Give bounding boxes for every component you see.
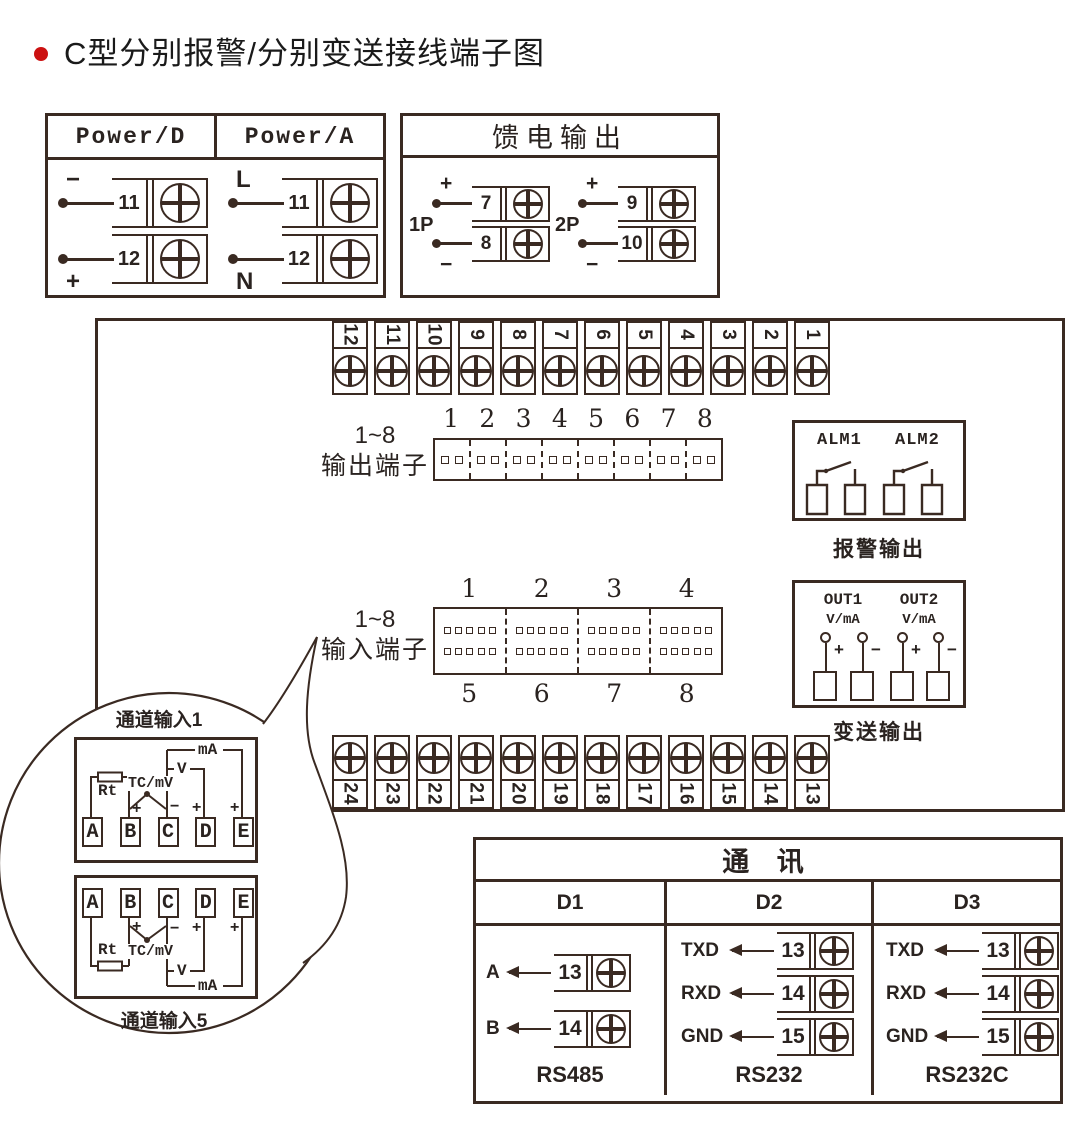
input-number: 1 [433, 574, 506, 603]
screw-icon [628, 355, 660, 387]
output-name-label: 输出端子 [310, 451, 440, 482]
pin-icon [610, 648, 617, 655]
input-connector-section [435, 609, 505, 673]
comm-column-headers: D1 D2 D3 [476, 882, 1060, 926]
out2-unit-label: V/mA [881, 612, 957, 628]
terminal-number: 11 [381, 324, 403, 346]
terminal-number: 22 [423, 782, 445, 805]
alarm-output-caption: 报警输出 [792, 533, 966, 563]
terminal-number: 6 [591, 329, 613, 341]
arrow-left-icon [509, 1028, 551, 1031]
signal-label: RXD [681, 983, 727, 1005]
pin-icon [707, 456, 715, 464]
signal-label: TXD [886, 940, 932, 962]
terminal-slot [809, 1020, 816, 1054]
feed-output-box: 馈电输出 1P + 7 − 8 2P + 9 − 10 [400, 113, 720, 298]
post-ring-icon [933, 632, 944, 643]
pin-icon [622, 627, 629, 634]
screw-icon [502, 355, 534, 387]
terminal-cell: 3 [710, 321, 746, 395]
screw-icon [502, 742, 534, 774]
pin-icon [516, 648, 523, 655]
rs232c-caption: RS232C [874, 1062, 1060, 1088]
pin-icon [671, 627, 678, 634]
screw-icon [1024, 1022, 1054, 1052]
terminal-body: 15 [777, 1018, 854, 1056]
terminal-body: 7 [472, 186, 550, 222]
plus-sign: + [132, 801, 141, 817]
terminal-number: 13 [777, 939, 809, 963]
terminal-slot [586, 1012, 593, 1046]
pin-icon [489, 648, 496, 655]
terminal-cell: 17 [626, 735, 662, 809]
signal-label: RXD [886, 983, 932, 1005]
pin-icon [599, 627, 606, 634]
post-terminal [926, 671, 950, 701]
pin-icon [588, 648, 595, 655]
power-d-terminal-11: − 11 [58, 178, 208, 228]
screw-icon [160, 183, 200, 223]
screw-box [324, 180, 378, 226]
alm2-label: ALM2 [895, 431, 940, 450]
feed-terminal-10: − 10 [578, 226, 696, 262]
pin-icon [516, 627, 523, 634]
output-terminal-label: 1~8 输出端子 [310, 421, 440, 482]
terminal-cell: 19 [542, 735, 578, 809]
bottom-terminal-strip: 24 23 22 21 20 19 18 17 [332, 735, 830, 809]
screw-icon [160, 239, 200, 279]
title-bullet-icon [34, 47, 48, 61]
input-number: 5 [433, 679, 506, 708]
power-a-header: Power/A [217, 116, 383, 157]
minus-sign: − [170, 921, 179, 937]
channel-input-5-label: 通道输入5 [84, 1006, 244, 1033]
output-number: 7 [651, 404, 687, 433]
pin-icon [660, 648, 667, 655]
pin-icon [622, 648, 629, 655]
screw-icon [819, 936, 849, 966]
ma-label: mA [197, 742, 218, 758]
terminal-number: 10 [618, 233, 646, 255]
terminal-body: 14 [777, 975, 854, 1013]
terminal-cell: 15 [710, 735, 746, 809]
terminal-number: 14 [982, 982, 1014, 1006]
screw-box [154, 180, 208, 226]
page-title: C型分别报警/分别变送接线端子图 [64, 28, 545, 73]
screw-icon [586, 742, 618, 774]
screw-icon [376, 742, 408, 774]
out1-unit-label: V/mA [805, 612, 881, 628]
plus-sign: + [66, 270, 80, 294]
wire [582, 242, 618, 245]
terminal-cell: 5 [626, 321, 662, 395]
terminal-number: 19 [549, 782, 571, 805]
group-1p-label: 1P [409, 214, 433, 237]
output-connector-section [435, 440, 469, 479]
power-terminal-box: Power/D Power/A − 11 + 12 L 11 N 12 [45, 113, 386, 298]
output-number: 5 [578, 404, 614, 433]
screw-icon [330, 183, 370, 223]
post-stem [902, 643, 905, 671]
pin-icon [660, 627, 667, 634]
input-number: 6 [506, 679, 579, 708]
terminal-number: 12 [339, 323, 361, 346]
screw-box [593, 1012, 631, 1046]
terminal-cell: 23 [374, 735, 410, 809]
terminal-cell: 24 [332, 735, 368, 809]
pin-icon [478, 627, 485, 634]
pin-icon [563, 456, 571, 464]
screw-box [1021, 1020, 1059, 1054]
terminal-body: 11 [282, 178, 378, 228]
input-number: 3 [578, 574, 651, 603]
terminal-cell: 11 [374, 321, 410, 395]
screw-icon [659, 229, 689, 259]
terminal-slot [500, 228, 507, 260]
rs485-terminal-a: A 13 [486, 954, 631, 992]
terminal-number: 2 [759, 329, 781, 341]
terminal-cell: 9 [458, 321, 494, 395]
output-number: 4 [542, 404, 578, 433]
screw-icon [330, 239, 370, 279]
plus-sign: + [440, 173, 452, 194]
terminal-slot [316, 236, 324, 282]
feed-output-header: 馈电输出 [403, 116, 717, 158]
feed-terminal-8: − 8 [432, 226, 550, 262]
terminal-slot [1014, 934, 1021, 968]
pin-icon [633, 627, 640, 634]
screw-icon [334, 355, 366, 387]
terminal-number: 9 [465, 329, 487, 341]
arrow-left-icon [732, 950, 774, 953]
terminal-body: 12 [282, 234, 378, 284]
plus-sign: + [192, 920, 201, 936]
terminal-body: 11 [112, 178, 208, 228]
terminal-number: 11 [112, 192, 146, 215]
terminal-number: 9 [618, 193, 646, 215]
transmit-output-box: OUT1 OUT2 V/mA V/mA + − + − [792, 580, 966, 708]
screw-icon [670, 355, 702, 387]
terminal-slot [809, 934, 816, 968]
terminal-slot [1014, 1020, 1021, 1054]
screw-icon [754, 355, 786, 387]
comm-header: 通 讯 [476, 840, 1060, 882]
terminal-number: 8 [472, 233, 500, 255]
wire [63, 202, 114, 205]
neutral-sign: N [236, 270, 253, 294]
output-connector-section [649, 440, 685, 479]
pin-icon [694, 627, 701, 634]
output-number: 6 [614, 404, 650, 433]
pin-icon [466, 648, 473, 655]
pin-icon [561, 627, 568, 634]
pin-icon [455, 456, 463, 464]
terminal-number: 13 [982, 939, 1014, 963]
pin-icon [444, 627, 451, 634]
pin-icon [549, 456, 557, 464]
arrow-left-icon [937, 993, 979, 996]
signal-label: A [486, 962, 504, 984]
tc-mv-label: TC/mV [127, 776, 174, 791]
output-range-label: 1~8 [310, 421, 440, 451]
post-ring-icon [897, 632, 908, 643]
terminal-cell: 10 [416, 321, 452, 395]
screw-icon [586, 355, 618, 387]
pin-icon [455, 648, 462, 655]
terminal-cell: 6 [584, 321, 620, 395]
plus-sign: + [230, 800, 239, 816]
power-d-terminal-12: + 12 [58, 234, 208, 284]
output-connector-section [505, 440, 541, 479]
pin-icon [444, 648, 451, 655]
input-terminal-label: 1~8 输入端子 [310, 605, 440, 666]
pin-icon [588, 627, 595, 634]
terminal-number: 14 [554, 1017, 586, 1041]
pin-icon [538, 627, 545, 634]
screw-icon [334, 742, 366, 774]
pin-icon [441, 456, 449, 464]
input-connector-section [577, 609, 649, 673]
screw-icon [513, 189, 543, 219]
output-number: 2 [469, 404, 505, 433]
screw-box [593, 956, 631, 990]
terminal-number: 4 [675, 329, 697, 341]
tc-mv-label: TC/mV [127, 944, 174, 959]
screw-icon [596, 958, 626, 988]
minus-sign: − [66, 168, 80, 192]
output-number: 8 [687, 404, 723, 433]
minus-sign: − [170, 799, 179, 815]
channel-terminal: B [120, 817, 141, 847]
screw-icon [659, 189, 689, 219]
channel-terminal: D [195, 817, 216, 847]
pin-icon [585, 456, 593, 464]
post-terminal [813, 671, 837, 701]
screw-icon [544, 355, 576, 387]
pin-icon [491, 456, 499, 464]
terminal-slot [586, 956, 593, 990]
arrow-left-icon [509, 972, 551, 975]
pin-icon [538, 648, 545, 655]
feed-terminal-9: + 9 [578, 186, 696, 222]
terminal-number: 12 [112, 248, 146, 271]
terminal-body: 9 [618, 186, 696, 222]
terminal-cell: 21 [458, 735, 494, 809]
terminal-body: 14 [982, 975, 1059, 1013]
relay-contact-icon [881, 457, 945, 517]
output-connector-section [685, 440, 721, 479]
post-stem [862, 643, 865, 671]
pin-icon [561, 648, 568, 655]
terminal-number: 13 [801, 782, 823, 805]
terminal-number: 7 [472, 193, 500, 215]
pin-icon [671, 456, 679, 464]
rs232-column: TXD 13 RXD 14 GND 15 RS232 [667, 926, 874, 1095]
screw-box [816, 977, 854, 1011]
channel-1-terminals: ABCDE [82, 817, 254, 847]
pin-icon [671, 648, 678, 655]
top-terminal-strip: 12 11 10 9 8 7 6 5 [332, 321, 830, 395]
alm1-label: ALM1 [817, 431, 862, 450]
pin-icon [527, 627, 534, 634]
ma-label: mA [197, 978, 218, 994]
screw-box [507, 188, 550, 220]
input-range-label: 1~8 [310, 605, 440, 635]
pin-icon [478, 648, 485, 655]
rs232c-terminal-gnd: GND 15 [886, 1018, 1059, 1056]
rs232-terminal-rxd: RXD 14 [681, 975, 854, 1013]
channel-5-wiring [77, 878, 255, 996]
terminal-cell: 14 [752, 735, 788, 809]
terminal-number: 14 [777, 982, 809, 1006]
pin-icon [657, 456, 665, 464]
post-terminal [850, 671, 874, 701]
screw-icon [460, 355, 492, 387]
minus-sign: − [440, 254, 452, 275]
pin-icon [550, 648, 557, 655]
screw-icon [712, 355, 744, 387]
wire [63, 258, 114, 261]
comm-body: A 13 B 14 RS485 TXD 13 RXD 14 [476, 926, 1060, 1095]
terminal-body: 14 [554, 1010, 631, 1048]
screw-icon [819, 1022, 849, 1052]
screw-box [1021, 934, 1059, 968]
terminal-body: 13 [982, 932, 1059, 970]
signal-label: GND [681, 1026, 727, 1048]
terminal-number: 3 [717, 329, 739, 341]
rs485-caption: RS485 [476, 1062, 664, 1088]
minus-sign: − [947, 641, 957, 658]
output-number-row: 12345678 [433, 404, 723, 433]
screw-box [653, 188, 696, 220]
screw-box [816, 934, 854, 968]
terminal-number: 11 [282, 192, 316, 215]
terminal-body: 15 [982, 1018, 1059, 1056]
terminal-cell: 12 [332, 321, 368, 395]
screw-icon [460, 742, 492, 774]
feed-terminal-7: + 7 [432, 186, 550, 222]
terminal-number: 5 [633, 329, 655, 341]
output-connector-section [613, 440, 649, 479]
line-sign: L [236, 168, 251, 192]
screw-box [1021, 977, 1059, 1011]
input-number-row-bottom: 5678 [433, 679, 723, 708]
terminal-cell: 2 [752, 321, 788, 395]
power-box-header: Power/D Power/A [48, 116, 383, 160]
input-number: 8 [651, 679, 724, 708]
pin-icon [599, 648, 606, 655]
rs232-caption: RS232 [667, 1062, 871, 1088]
rt-label: Rt [97, 942, 118, 958]
terminal-body: 13 [777, 932, 854, 970]
v-label: V [176, 761, 188, 777]
terminal-number: 8 [507, 329, 529, 341]
pin-icon [489, 627, 496, 634]
terminal-number: 20 [507, 782, 529, 805]
post-ring-icon [857, 632, 868, 643]
minus-sign: − [586, 254, 598, 275]
pin-icon [635, 456, 643, 464]
terminal-body: 12 [112, 234, 208, 284]
screw-box [154, 236, 208, 282]
terminal-number: 1 [801, 329, 823, 341]
terminal-number: 24 [339, 782, 361, 805]
terminal-cell: 4 [668, 321, 704, 395]
pin-icon [705, 627, 712, 634]
input-name-label: 输入端子 [310, 635, 440, 666]
terminal-slot [1014, 977, 1021, 1011]
terminal-cell: 22 [416, 735, 452, 809]
screw-icon [376, 355, 408, 387]
screw-box [324, 236, 378, 282]
screw-icon [796, 355, 828, 387]
screw-icon [754, 742, 786, 774]
pin-icon [513, 456, 521, 464]
wire [233, 202, 284, 205]
plus-sign: + [586, 173, 598, 194]
screw-icon [418, 742, 450, 774]
terminal-body: 8 [472, 226, 550, 262]
screw-icon [796, 742, 828, 774]
wire [436, 202, 472, 205]
plus-sign: + [192, 800, 201, 816]
wire [582, 202, 618, 205]
input-connector-section [649, 609, 721, 673]
channel-5-wiring-box: ABCDE Rt TC/mV V mA + − + + [74, 875, 258, 999]
group-2p-label: 2P [555, 214, 579, 237]
arrow-left-icon [937, 950, 979, 953]
screw-icon [418, 355, 450, 387]
plus-sign: + [230, 920, 239, 936]
pin-icon [527, 648, 534, 655]
channel-input-1-label: 通道输入1 [84, 705, 234, 732]
terminal-body: 10 [618, 226, 696, 262]
signal-label: TXD [681, 940, 727, 962]
output-connector-strip [433, 438, 723, 481]
terminal-cell: 7 [542, 321, 578, 395]
terminal-number: 13 [554, 961, 586, 985]
alarm-output-box: ALM1 ALM2 [792, 420, 966, 521]
input-connector-strip [433, 607, 723, 675]
terminal-number: 15 [717, 782, 739, 805]
wire [233, 258, 284, 261]
wiring-diagram-page: C型分别报警/分别变送接线端子图 Power/D Power/A − 11 + … [0, 0, 1080, 1137]
arrow-left-icon [732, 1036, 774, 1039]
output-connector-section [577, 440, 613, 479]
terminal-number: 16 [675, 782, 697, 805]
d2-header: D2 [667, 882, 874, 923]
pin-icon [455, 627, 462, 634]
screw-box [653, 228, 696, 260]
terminal-number: 7 [549, 329, 571, 341]
pin-icon [466, 627, 473, 634]
rs232-terminal-txd: TXD 13 [681, 932, 854, 970]
screw-icon [628, 742, 660, 774]
terminal-number: 10 [423, 323, 445, 346]
rs485-column: A 13 B 14 RS485 [476, 926, 667, 1095]
pin-icon [693, 456, 701, 464]
pin-icon [621, 456, 629, 464]
input-connector-section [505, 609, 577, 673]
arrow-left-icon [732, 993, 774, 996]
output-number: 3 [506, 404, 542, 433]
screw-box [816, 1020, 854, 1054]
terminal-cell: 8 [500, 321, 536, 395]
terminal-number: 21 [465, 782, 487, 805]
pin-icon [550, 627, 557, 634]
output-connector-section [541, 440, 577, 479]
terminal-number: 18 [591, 782, 613, 805]
